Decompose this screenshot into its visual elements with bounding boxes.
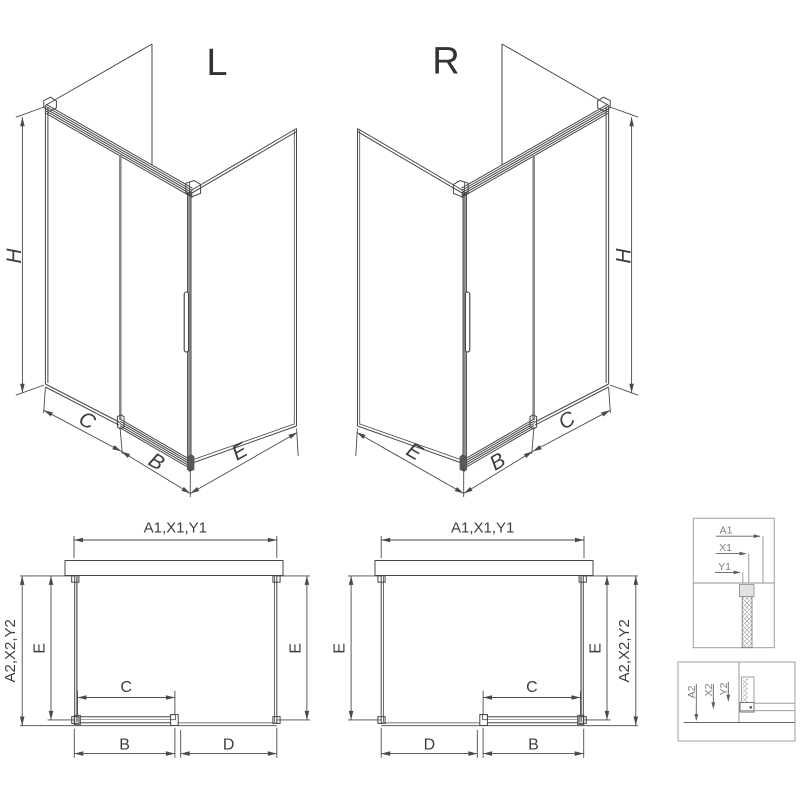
variant-letter-right: R bbox=[432, 41, 459, 83]
dim-label-door-plan-left: B bbox=[119, 736, 130, 753]
dim-label-opening-plan-right: C bbox=[526, 679, 538, 696]
dim-label-opening-plan-left: C bbox=[120, 679, 132, 696]
detail-dim-label-y2: Y2 bbox=[718, 682, 730, 695]
dim-label-depth-left-plan-left: E bbox=[32, 643, 49, 654]
dim-label-door-plan-right: B bbox=[528, 736, 539, 753]
dim-label-depth-right-plan-left: E bbox=[287, 643, 304, 654]
detail-dim-label-x1: X1 bbox=[719, 542, 732, 554]
dim-label-fixed-plan-left: D bbox=[223, 736, 235, 753]
dim-label-side-left: E bbox=[228, 438, 252, 465]
iso-right-labels: R H C B E bbox=[402, 41, 635, 476]
dim-label-height-right: H bbox=[613, 248, 636, 264]
dim-label-depth-total-plan-left: A2,X2,Y2 bbox=[2, 619, 19, 682]
dim-label-depth-left-plan-right: E bbox=[332, 643, 349, 654]
iso-view-right-geometry bbox=[355, 44, 638, 497]
drawing-canvas: L H C B E R H C B E bbox=[0, 0, 800, 800]
plan-left-labels: A1,X1,Y1 A2,X2,Y2 E E C B D bbox=[2, 520, 304, 754]
iso-left-labels: L H C B E bbox=[3, 42, 252, 475]
plan-view-left-geometry bbox=[20, 536, 310, 758]
detail-dim-label-a2: A2 bbox=[686, 685, 698, 698]
dim-label-door-left: B bbox=[144, 448, 168, 475]
variant-letter-left: L bbox=[206, 42, 227, 84]
floor-profile-detail: A2 X2 Y2 bbox=[678, 662, 795, 741]
detail-dim-label-x2: X2 bbox=[703, 683, 715, 696]
dim-label-width-plan-right: A1,X1,Y1 bbox=[451, 520, 514, 537]
detail-dim-label-a1: A1 bbox=[720, 525, 733, 537]
dim-label-fixed-plan-right: D bbox=[424, 736, 436, 753]
dim-label-fixed-left: C bbox=[75, 407, 100, 435]
detail-dim-label-y1: Y1 bbox=[718, 561, 731, 573]
dim-label-width-plan-left: A1,X1,Y1 bbox=[144, 520, 207, 537]
technical-drawing-page: L H C B E R H C B E bbox=[0, 0, 800, 800]
dim-label-door-right: B bbox=[486, 448, 510, 475]
wall-profile-detail: A1 X1 Y1 bbox=[693, 518, 774, 647]
iso-view-left-geometry bbox=[16, 44, 299, 497]
dim-label-depth-right-plan-right: E bbox=[588, 643, 605, 654]
dim-label-side-right: E bbox=[402, 438, 426, 465]
dim-label-depth-total-plan-right: A2,X2,Y2 bbox=[616, 619, 633, 682]
dim-label-fixed-right: C bbox=[555, 407, 580, 435]
dim-label-height-left: H bbox=[3, 248, 26, 264]
